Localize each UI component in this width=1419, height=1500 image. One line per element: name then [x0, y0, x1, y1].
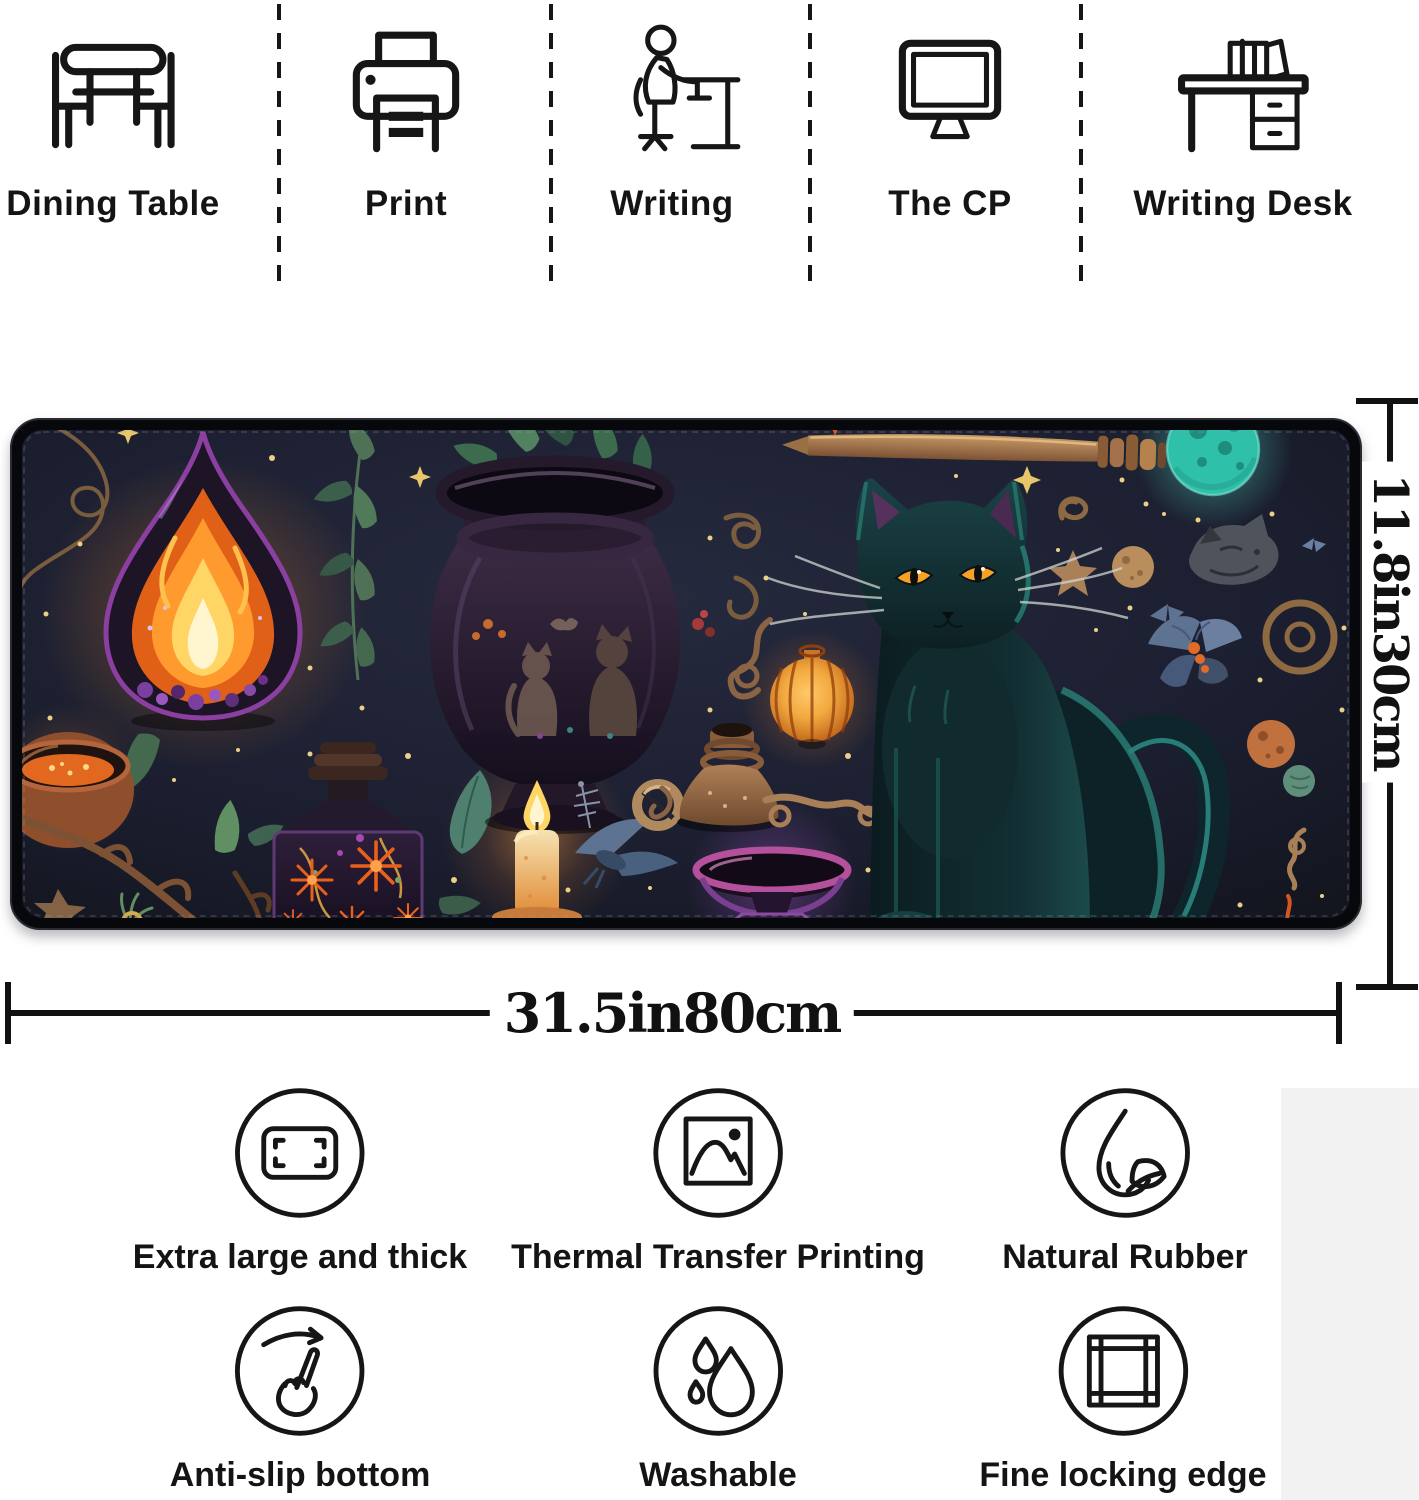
dashed-divider: [1079, 4, 1083, 286]
use-case-label: Dining Table: [6, 184, 219, 224]
use-case-label: Writing Desk: [1133, 184, 1352, 224]
water-drops-icon: [645, 1298, 791, 1444]
use-case-print: Print: [330, 16, 482, 224]
computer-monitor-icon: [874, 16, 1026, 174]
feature-locking-edge: Fine locking edge: [979, 1298, 1266, 1495]
frame-edge-icon: [1050, 1298, 1196, 1444]
feature-extra-large: Extra large and thick: [133, 1080, 467, 1277]
tan-planet: [1112, 546, 1154, 588]
use-case-label: The CP: [888, 184, 1012, 224]
use-case-writing-desk: Writing Desk: [1133, 16, 1352, 224]
feature-label: Natural Rubber: [1002, 1238, 1248, 1277]
feature-washable: Washable: [639, 1298, 796, 1495]
feature-label: Anti-slip bottom: [170, 1456, 431, 1495]
desk-mat-product-image: [10, 418, 1362, 930]
droplet-leaf-icon: [1052, 1080, 1198, 1226]
dining-table-icon: [37, 16, 189, 174]
dashed-divider: [808, 4, 812, 286]
use-case-dining-table: Dining Table: [6, 16, 219, 224]
picture-icon: [645, 1080, 791, 1226]
size-frame-icon: [227, 1080, 373, 1226]
use-case-writing: Writing: [596, 16, 748, 224]
background-gray-band: [1281, 1088, 1419, 1500]
feature-thermal-transfer: Thermal Transfer Printing: [511, 1080, 925, 1277]
writing-desk-icon: [1167, 16, 1319, 174]
dashed-divider: [277, 4, 281, 286]
height-dimension-top-cap: [1356, 398, 1418, 404]
width-dimension-label: 31.5in80cm: [490, 981, 854, 1045]
feature-label: Thermal Transfer Printing: [511, 1238, 925, 1277]
use-case-label: Writing: [610, 184, 733, 224]
feature-anti-slip: Anti-slip bottom: [170, 1298, 431, 1495]
feature-label: Fine locking edge: [979, 1456, 1266, 1495]
feature-natural-rubber: Natural Rubber: [1002, 1080, 1248, 1277]
use-case-the-cp: The CP: [874, 16, 1026, 224]
feature-label: Extra large and thick: [133, 1238, 467, 1277]
width-dimension-right-cap: [1336, 982, 1342, 1044]
width-dimension-left-cap: [5, 982, 11, 1044]
height-dimension-bottom-cap: [1356, 984, 1418, 990]
use-case-label: Print: [365, 184, 447, 224]
printer-icon: [330, 16, 482, 174]
dashed-divider: [549, 4, 553, 286]
height-dimension-label: 11.8in30cm: [1362, 462, 1418, 783]
desk-mat-art: [10, 418, 1362, 930]
writing-person-icon: [596, 16, 748, 174]
feature-label: Washable: [639, 1456, 796, 1495]
finger-swipe-icon: [227, 1298, 373, 1444]
